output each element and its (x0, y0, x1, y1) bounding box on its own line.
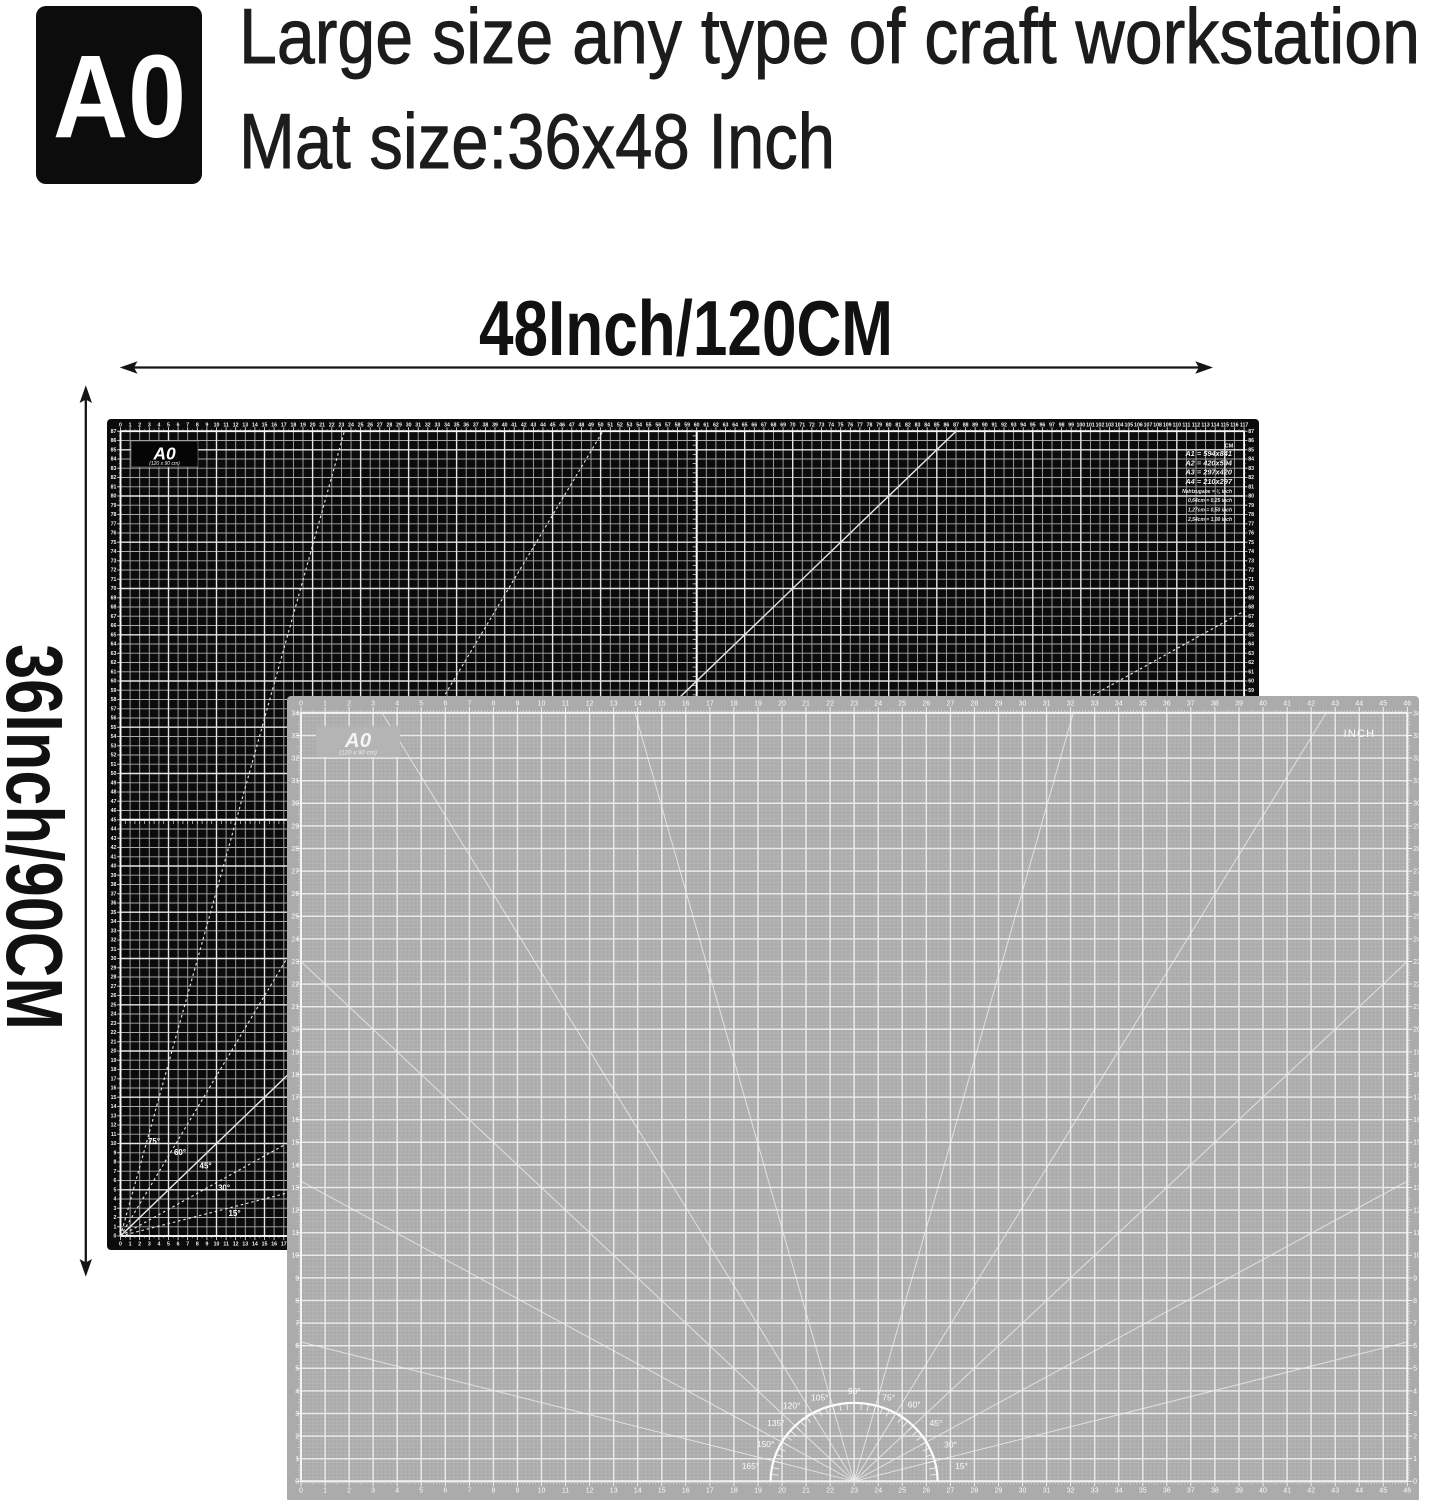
svg-text:106: 106 (1134, 422, 1143, 428)
svg-text:47: 47 (111, 799, 117, 805)
svg-text:70: 70 (111, 586, 117, 592)
svg-text:38: 38 (1211, 701, 1219, 708)
svg-text:21: 21 (802, 1488, 810, 1495)
svg-text:36: 36 (1163, 1488, 1171, 1495)
svg-text:83: 83 (111, 466, 117, 472)
svg-text:9: 9 (205, 1242, 208, 1248)
svg-text:2: 2 (114, 1215, 117, 1221)
svg-text:51: 51 (111, 762, 117, 768)
svg-text:76: 76 (1248, 531, 1254, 537)
svg-text:33: 33 (291, 733, 299, 740)
svg-text:16: 16 (1413, 1117, 1421, 1124)
svg-text:4: 4 (1413, 1388, 1417, 1395)
svg-text:17: 17 (111, 1076, 117, 1082)
svg-text:60°: 60° (908, 1400, 921, 1410)
svg-text:60: 60 (694, 422, 700, 428)
svg-text:13: 13 (291, 1185, 299, 1192)
svg-text:7: 7 (114, 1169, 117, 1175)
svg-text:16: 16 (271, 422, 277, 428)
svg-text:6: 6 (295, 1343, 299, 1350)
svg-text:1: 1 (129, 422, 132, 428)
svg-text:13: 13 (610, 1488, 618, 1495)
svg-text:86: 86 (111, 438, 117, 444)
svg-text:23: 23 (291, 959, 299, 966)
svg-text:25: 25 (1413, 914, 1421, 921)
svg-text:38: 38 (1211, 1488, 1219, 1495)
svg-text:6: 6 (177, 422, 180, 428)
svg-text:31: 31 (291, 778, 299, 785)
svg-text:90°: 90° (848, 1386, 861, 1396)
svg-text:9: 9 (114, 1150, 117, 1156)
svg-text:5: 5 (419, 701, 423, 708)
svg-text:165°: 165° (742, 1461, 760, 1471)
svg-text:6: 6 (443, 1488, 447, 1495)
svg-text:66: 66 (111, 623, 117, 629)
svg-text:A0: A0 (53, 31, 186, 163)
svg-text:6: 6 (114, 1178, 117, 1184)
svg-text:43: 43 (111, 836, 117, 842)
svg-text:10: 10 (538, 1488, 546, 1495)
svg-text:42: 42 (521, 422, 527, 428)
svg-text:24: 24 (874, 701, 882, 708)
svg-text:8: 8 (114, 1160, 117, 1166)
svg-text:16: 16 (271, 1242, 277, 1248)
svg-text:15: 15 (291, 1140, 299, 1147)
svg-text:0: 0 (299, 1488, 303, 1495)
svg-text:29: 29 (995, 1488, 1003, 1495)
svg-text:105: 105 (1124, 422, 1133, 428)
svg-text:23: 23 (339, 422, 345, 428)
svg-text:19: 19 (300, 422, 306, 428)
svg-text:87: 87 (1248, 429, 1254, 435)
svg-text:81: 81 (111, 484, 117, 490)
svg-text:8: 8 (196, 1242, 199, 1248)
svg-text:39: 39 (1235, 1488, 1243, 1495)
svg-text:7: 7 (467, 1488, 471, 1495)
svg-text:102: 102 (1096, 422, 1105, 428)
svg-text:64: 64 (1248, 642, 1254, 648)
svg-text:69: 69 (780, 422, 786, 428)
svg-text:Nahtzugabe = ¼ inch: Nahtzugabe = ¼ inch (1182, 489, 1232, 495)
svg-text:67: 67 (1248, 614, 1254, 620)
svg-text:3: 3 (1413, 1411, 1417, 1418)
svg-text:95: 95 (1030, 422, 1036, 428)
svg-text:72: 72 (111, 568, 117, 574)
svg-text:9: 9 (1413, 1275, 1417, 1282)
svg-text:43: 43 (1331, 1488, 1339, 1495)
svg-text:58: 58 (675, 422, 681, 428)
svg-text:19: 19 (291, 1049, 299, 1056)
svg-text:2: 2 (347, 701, 351, 708)
svg-text:0: 0 (299, 701, 303, 708)
svg-text:23: 23 (111, 1021, 117, 1027)
svg-text:61: 61 (111, 669, 117, 675)
svg-text:18: 18 (291, 1072, 299, 1079)
svg-text:35: 35 (1139, 1488, 1147, 1495)
svg-text:48: 48 (111, 790, 117, 796)
svg-text:45: 45 (550, 422, 556, 428)
svg-text:72: 72 (809, 422, 815, 428)
svg-text:22: 22 (826, 701, 834, 708)
svg-text:90: 90 (982, 422, 988, 428)
svg-text:28: 28 (387, 422, 393, 428)
svg-text:65: 65 (1248, 632, 1254, 638)
svg-text:63: 63 (723, 422, 729, 428)
svg-text:84: 84 (111, 457, 117, 463)
svg-text:57: 57 (665, 422, 671, 428)
svg-text:12: 12 (111, 1123, 117, 1129)
svg-text:22: 22 (329, 422, 335, 428)
svg-text:116: 116 (1230, 422, 1238, 428)
svg-text:10: 10 (111, 1141, 117, 1147)
svg-text:2: 2 (138, 422, 141, 428)
svg-text:62: 62 (111, 660, 117, 666)
svg-text:21: 21 (802, 701, 810, 708)
svg-text:3: 3 (295, 1411, 299, 1418)
svg-text:21: 21 (291, 1004, 299, 1011)
svg-text:26: 26 (367, 422, 373, 428)
svg-text:42: 42 (111, 845, 117, 851)
svg-text:8: 8 (491, 701, 495, 708)
svg-text:14: 14 (252, 1242, 258, 1248)
svg-text:39: 39 (1235, 701, 1243, 708)
svg-text:41: 41 (1283, 1488, 1291, 1495)
svg-text:Mat size:36x48 Inch: Mat size:36x48 Inch (239, 97, 835, 185)
svg-text:18: 18 (730, 1488, 738, 1495)
svg-text:42: 42 (1307, 1488, 1315, 1495)
svg-text:17: 17 (281, 1242, 287, 1248)
svg-text:22: 22 (1413, 982, 1421, 989)
svg-text:3: 3 (371, 1488, 375, 1495)
svg-text:8: 8 (1413, 1298, 1417, 1305)
svg-text:80: 80 (1248, 494, 1254, 500)
svg-text:32: 32 (1067, 1488, 1075, 1495)
svg-text:4: 4 (114, 1197, 117, 1203)
svg-text:74: 74 (828, 422, 834, 428)
svg-text:31: 31 (1043, 701, 1051, 708)
svg-text:77: 77 (111, 521, 117, 527)
svg-text:14: 14 (634, 1488, 642, 1495)
svg-text:65: 65 (111, 632, 117, 638)
svg-text:42: 42 (1307, 701, 1315, 708)
svg-text:52: 52 (111, 753, 117, 759)
svg-text:32: 32 (1413, 756, 1421, 763)
svg-text:109: 109 (1163, 422, 1172, 428)
svg-text:29: 29 (1413, 823, 1421, 830)
svg-text:26: 26 (922, 701, 930, 708)
svg-text:75°: 75° (882, 1392, 895, 1402)
svg-text:18: 18 (730, 701, 738, 708)
svg-text:101: 101 (1086, 422, 1095, 428)
svg-text:47: 47 (569, 422, 575, 428)
svg-text:24: 24 (348, 422, 354, 428)
svg-text:54: 54 (111, 734, 117, 740)
svg-text:67: 67 (761, 422, 767, 428)
svg-text:28: 28 (111, 975, 117, 981)
svg-text:45°: 45° (930, 1418, 943, 1428)
svg-text:5: 5 (114, 1187, 117, 1193)
svg-text:36: 36 (463, 422, 469, 428)
svg-text:32: 32 (291, 756, 299, 763)
svg-text:10: 10 (538, 701, 546, 708)
svg-text:27: 27 (947, 701, 955, 708)
svg-text:0: 0 (119, 422, 122, 428)
svg-text:4: 4 (295, 1388, 299, 1395)
svg-text:82: 82 (111, 475, 117, 481)
svg-text:7: 7 (295, 1321, 299, 1328)
svg-text:150°: 150° (757, 1439, 775, 1449)
svg-text:57: 57 (111, 706, 117, 712)
svg-text:29: 29 (111, 965, 117, 971)
svg-text:97: 97 (1049, 422, 1055, 428)
svg-text:46: 46 (559, 422, 565, 428)
svg-text:A4 = 210x297: A4 = 210x297 (1184, 477, 1233, 486)
svg-text:49: 49 (588, 422, 594, 428)
svg-text:21: 21 (111, 1039, 117, 1045)
svg-text:34: 34 (111, 919, 117, 925)
svg-text:80: 80 (111, 494, 117, 500)
svg-text:1: 1 (114, 1224, 117, 1230)
svg-text:73: 73 (111, 558, 117, 564)
svg-text:7: 7 (467, 701, 471, 708)
svg-text:2: 2 (347, 1488, 351, 1495)
svg-text:56: 56 (111, 716, 117, 722)
svg-text:14: 14 (291, 1162, 299, 1169)
svg-text:25: 25 (358, 422, 364, 428)
svg-text:88: 88 (963, 422, 969, 428)
svg-text:1: 1 (323, 701, 327, 708)
svg-text:11: 11 (111, 1132, 117, 1138)
svg-text:11: 11 (562, 701, 569, 708)
svg-text:15: 15 (111, 1095, 117, 1101)
svg-text:25: 25 (111, 1002, 117, 1008)
svg-text:8: 8 (196, 422, 199, 428)
svg-text:112: 112 (1192, 422, 1200, 428)
svg-text:5: 5 (167, 422, 170, 428)
svg-text:(120 x 90 cm): (120 x 90 cm) (149, 461, 180, 467)
svg-text:33: 33 (1091, 1488, 1099, 1495)
svg-text:44: 44 (1355, 1488, 1363, 1495)
svg-text:15: 15 (658, 1488, 666, 1495)
svg-text:83: 83 (915, 422, 921, 428)
svg-text:83: 83 (1248, 466, 1254, 472)
svg-text:111: 111 (1182, 422, 1190, 428)
svg-text:15: 15 (1413, 1140, 1421, 1147)
svg-text:41: 41 (111, 854, 117, 860)
svg-text:59: 59 (1248, 688, 1254, 694)
svg-text:15: 15 (262, 422, 268, 428)
svg-text:85: 85 (1248, 447, 1254, 453)
svg-text:30: 30 (1019, 701, 1027, 708)
svg-text:110: 110 (1173, 422, 1181, 428)
svg-text:14: 14 (111, 1104, 117, 1110)
svg-text:1: 1 (323, 1488, 327, 1495)
svg-text:24: 24 (874, 1488, 882, 1495)
svg-text:30: 30 (406, 422, 412, 428)
svg-text:15: 15 (658, 701, 666, 708)
svg-text:32: 32 (1067, 701, 1075, 708)
svg-text:100: 100 (1076, 422, 1085, 428)
svg-text:7: 7 (1413, 1321, 1417, 1328)
svg-text:68: 68 (1248, 605, 1254, 611)
svg-text:78: 78 (111, 512, 117, 518)
svg-text:78: 78 (867, 422, 873, 428)
svg-text:53: 53 (111, 743, 117, 749)
svg-text:34: 34 (1413, 710, 1421, 717)
svg-text:74: 74 (1248, 549, 1254, 555)
svg-text:17: 17 (706, 1488, 714, 1495)
svg-text:35: 35 (111, 910, 117, 916)
svg-text:13: 13 (610, 701, 618, 708)
svg-text:9: 9 (516, 1488, 520, 1495)
svg-text:55: 55 (646, 422, 652, 428)
svg-text:65: 65 (742, 422, 748, 428)
svg-text:79: 79 (111, 503, 117, 509)
svg-text:0: 0 (114, 1234, 117, 1240)
svg-text:19: 19 (754, 701, 762, 708)
svg-text:24: 24 (1413, 936, 1421, 943)
svg-text:18: 18 (111, 1067, 117, 1073)
svg-text:20: 20 (291, 1027, 299, 1034)
svg-text:4: 4 (395, 701, 399, 708)
svg-text:82: 82 (1248, 475, 1254, 481)
svg-text:13: 13 (1413, 1185, 1421, 1192)
svg-text:64: 64 (111, 642, 117, 648)
svg-text:98: 98 (1059, 422, 1065, 428)
svg-text:76: 76 (847, 422, 853, 428)
svg-text:87: 87 (111, 429, 117, 435)
svg-text:135°: 135° (767, 1418, 785, 1428)
svg-text:92: 92 (1001, 422, 1007, 428)
svg-text:1: 1 (129, 1242, 132, 1248)
svg-text:5: 5 (419, 1488, 423, 1495)
svg-text:26: 26 (922, 1488, 930, 1495)
svg-text:12: 12 (586, 1488, 594, 1495)
svg-text:11: 11 (292, 1230, 299, 1237)
svg-text:32: 32 (111, 938, 117, 944)
svg-text:45: 45 (1379, 701, 1387, 708)
svg-text:24: 24 (291, 936, 299, 943)
svg-text:22: 22 (291, 982, 299, 989)
svg-text:114: 114 (1211, 422, 1219, 428)
svg-text:31: 31 (111, 947, 117, 953)
svg-text:29: 29 (396, 422, 402, 428)
svg-text:31: 31 (1043, 1488, 1051, 1495)
svg-text:86: 86 (944, 422, 950, 428)
svg-text:19: 19 (111, 1058, 117, 1064)
svg-text:91: 91 (992, 422, 998, 428)
svg-text:37: 37 (473, 422, 479, 428)
svg-text:26: 26 (111, 993, 117, 999)
svg-text:8: 8 (491, 1488, 495, 1495)
svg-text:30°: 30° (944, 1440, 957, 1450)
svg-text:30: 30 (111, 956, 117, 962)
svg-text:16: 16 (111, 1086, 117, 1092)
svg-text:2: 2 (1413, 1434, 1417, 1441)
svg-text:79: 79 (876, 422, 882, 428)
svg-text:27: 27 (947, 1488, 955, 1495)
svg-text:64: 64 (732, 422, 738, 428)
svg-text:14: 14 (252, 422, 258, 428)
svg-text:51: 51 (607, 422, 613, 428)
svg-text:23: 23 (1413, 959, 1421, 966)
svg-text:12: 12 (1413, 1208, 1421, 1215)
svg-text:28: 28 (1413, 846, 1421, 853)
svg-text:56: 56 (655, 422, 661, 428)
svg-text:15°: 15° (228, 1209, 240, 1218)
svg-text:27: 27 (291, 869, 299, 876)
svg-text:19: 19 (754, 1488, 762, 1495)
svg-text:46: 46 (1403, 1488, 1411, 1495)
svg-text:A2 = 420x594: A2 = 420x594 (1184, 458, 1232, 467)
svg-text:3: 3 (371, 701, 375, 708)
svg-text:75°: 75° (148, 1137, 160, 1146)
svg-text:28: 28 (971, 1488, 979, 1495)
svg-text:49: 49 (111, 780, 117, 786)
svg-text:84: 84 (1248, 457, 1254, 463)
svg-text:66: 66 (1248, 623, 1254, 629)
svg-text:62: 62 (1248, 660, 1254, 666)
svg-text:22: 22 (826, 1488, 834, 1495)
svg-text:30: 30 (1019, 1488, 1027, 1495)
svg-text:21: 21 (319, 422, 325, 428)
svg-text:43: 43 (531, 422, 537, 428)
svg-text:0: 0 (295, 1479, 299, 1486)
svg-text:30: 30 (1413, 801, 1421, 808)
svg-text:61: 61 (703, 422, 709, 428)
svg-text:5: 5 (295, 1366, 299, 1373)
svg-text:33: 33 (1413, 733, 1421, 740)
svg-text:60: 60 (111, 679, 117, 685)
svg-text:26: 26 (1413, 891, 1421, 898)
svg-text:81: 81 (1248, 484, 1254, 490)
svg-text:INCH: INCH (1344, 728, 1376, 740)
svg-text:2: 2 (138, 1242, 141, 1248)
svg-text:48Inch/120CM: 48Inch/120CM (479, 284, 893, 372)
svg-text:53: 53 (627, 422, 633, 428)
svg-text:37: 37 (1187, 1488, 1195, 1495)
svg-text:75: 75 (838, 422, 844, 428)
svg-text:30: 30 (291, 801, 299, 808)
svg-text:12: 12 (586, 701, 594, 708)
svg-text:50: 50 (111, 771, 117, 777)
svg-text:1: 1 (295, 1456, 299, 1463)
svg-text:66: 66 (751, 422, 757, 428)
svg-text:5: 5 (167, 1242, 170, 1248)
svg-text:20: 20 (111, 1049, 117, 1055)
svg-text:36: 36 (111, 901, 117, 907)
svg-text:96: 96 (1040, 422, 1046, 428)
svg-text:44: 44 (1355, 701, 1363, 708)
svg-text:18: 18 (291, 422, 297, 428)
svg-text:33: 33 (111, 928, 117, 934)
svg-text:28: 28 (291, 846, 299, 853)
svg-text:63: 63 (1248, 651, 1254, 657)
svg-text:71: 71 (111, 577, 117, 583)
svg-text:75: 75 (1248, 540, 1254, 546)
svg-text:36Inch/90CM: 36Inch/90CM (0, 644, 79, 1030)
svg-text:40: 40 (502, 422, 508, 428)
svg-text:0: 0 (1413, 1479, 1417, 1486)
svg-text:70: 70 (790, 422, 796, 428)
svg-text:115: 115 (1221, 422, 1229, 428)
svg-text:20: 20 (778, 701, 786, 708)
svg-text:68: 68 (111, 605, 117, 611)
svg-text:77: 77 (857, 422, 863, 428)
svg-text:4: 4 (157, 1242, 160, 1248)
svg-text:85: 85 (934, 422, 940, 428)
svg-text:120°: 120° (783, 1401, 801, 1411)
